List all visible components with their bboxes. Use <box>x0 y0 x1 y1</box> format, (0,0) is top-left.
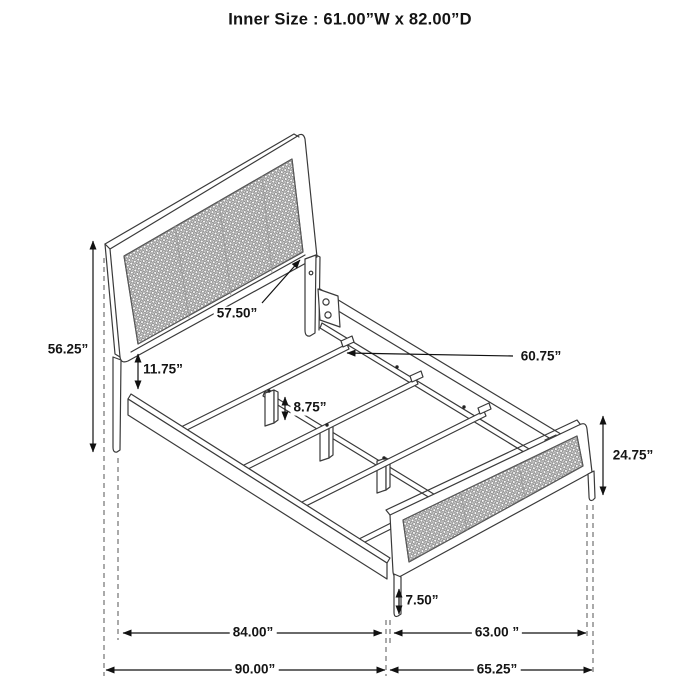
center-leg-side <box>329 425 333 458</box>
dim-label-headboard-height: 56.25” <box>45 343 92 358</box>
dim-label-slat-length: 60.75” <box>518 350 565 365</box>
bed-dimension-diagram: Inner Size : 61.00”W x 82.00”D 56.25” 11… <box>0 0 700 700</box>
dim-label-overall-depth: 90.00” <box>232 663 279 678</box>
center-leg <box>265 390 274 426</box>
near-rail-front-face <box>128 399 387 579</box>
dim-label-center-leg-height: 8.75” <box>290 401 329 416</box>
center-leg-side <box>274 390 278 423</box>
dim-label-headboard-width: 57.50” <box>214 307 261 322</box>
footboard-near-leg <box>394 574 401 617</box>
headboard-bracket <box>318 289 340 327</box>
dim-label-footboard-height: 24.75” <box>610 449 657 464</box>
slat-end-cap <box>410 371 423 382</box>
headboard-right-leg <box>305 255 316 336</box>
far-side-rail <box>320 289 589 462</box>
dim-label-footboard-clearance: 7.50” <box>402 594 441 609</box>
headboard-left-leg <box>113 357 121 452</box>
slat <box>175 344 349 435</box>
dim-label-side-rail-span: 84.00” <box>230 626 277 641</box>
bed-line-art <box>0 0 700 700</box>
slat-end-cap <box>478 403 491 414</box>
dim-label-footboard-width: 63.00 ” <box>472 626 522 641</box>
footboard-far-leg <box>588 471 595 501</box>
dim-label-footboard-overall-width: 65.25” <box>474 663 521 678</box>
dim-label-rail-clearance: 11.75” <box>140 363 186 378</box>
diagram-title: Inner Size : 61.00”W x 82.00”D <box>228 11 472 30</box>
near-side-rail <box>128 394 390 579</box>
